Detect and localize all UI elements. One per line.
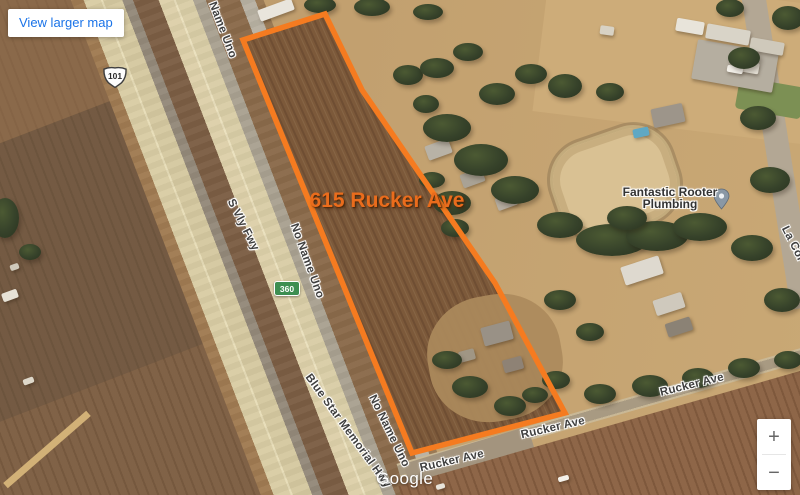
zoom-in-button[interactable]: + [757, 419, 791, 454]
tree [453, 43, 483, 61]
zoom-out-button[interactable]: − [757, 455, 791, 490]
svg-text:101: 101 [108, 71, 122, 81]
tree [491, 176, 539, 204]
route-360-badge: 360 [274, 281, 300, 296]
tree [522, 387, 548, 403]
tree [452, 376, 488, 398]
tree [454, 144, 508, 176]
tree [544, 290, 576, 310]
tree [576, 323, 604, 341]
satellite-map-canvas[interactable]: No Name Uno S Vly Fwy No Name Uno Blue S… [0, 0, 800, 495]
tree [774, 351, 800, 369]
view-larger-map-link[interactable]: View larger map [8, 9, 124, 37]
tree [728, 47, 760, 69]
parcel-address-label: 615 Rucker Ave [310, 189, 465, 213]
tree [479, 83, 515, 105]
tree [750, 167, 790, 193]
tree [432, 351, 462, 369]
tree [420, 58, 454, 78]
tree [423, 114, 471, 142]
tree [393, 65, 423, 85]
us-101-shield-icon: 101 [102, 65, 128, 89]
tree [413, 4, 443, 20]
google-logo[interactable]: Google [376, 469, 433, 489]
tree [548, 74, 582, 98]
tree [441, 219, 469, 237]
tree [772, 6, 800, 30]
tree [596, 83, 624, 101]
zoom-control: + − [757, 419, 791, 490]
tree [584, 384, 616, 404]
poi-label-fantastic-rooter-plumbing[interactable]: Fantastic Rooter Plumbing [600, 186, 740, 210]
tree [731, 235, 773, 261]
tree [537, 212, 583, 238]
tree [515, 64, 547, 84]
tree [728, 358, 760, 378]
tree [542, 371, 570, 389]
tree [419, 172, 445, 188]
building [599, 25, 614, 36]
tree [19, 244, 41, 260]
tree [413, 95, 439, 113]
tree [673, 213, 727, 241]
tree [494, 396, 526, 416]
tree [740, 106, 776, 130]
tree [764, 288, 800, 312]
